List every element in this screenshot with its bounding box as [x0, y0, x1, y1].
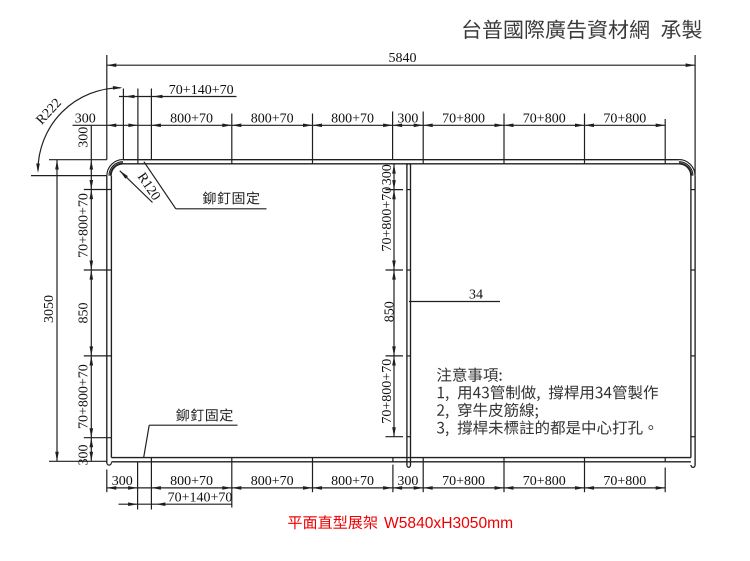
svg-text:5840: 5840: [389, 51, 417, 66]
svg-text:70+140+70: 70+140+70: [169, 83, 234, 98]
svg-text:850: 850: [383, 301, 398, 322]
svg-text:70+140+70: 70+140+70: [168, 491, 233, 506]
svg-text:70+800: 70+800: [442, 474, 485, 489]
svg-text:800+70: 800+70: [170, 474, 213, 489]
svg-text:300: 300: [77, 445, 92, 466]
svg-text:70+800+70: 70+800+70: [77, 193, 92, 258]
svg-text:800+70: 800+70: [331, 474, 374, 489]
svg-text:800+70: 800+70: [331, 112, 374, 127]
svg-text:800+70: 800+70: [251, 474, 294, 489]
svg-text:800+70: 800+70: [251, 112, 294, 127]
svg-text:70+800: 70+800: [523, 474, 566, 489]
svg-text:300: 300: [397, 112, 418, 127]
svg-text:300: 300: [112, 474, 133, 489]
svg-text:34: 34: [469, 287, 483, 302]
svg-text:800+70: 800+70: [170, 112, 213, 127]
svg-text:300: 300: [380, 164, 395, 185]
svg-text:70+800: 70+800: [442, 112, 485, 127]
svg-text:300: 300: [75, 112, 96, 127]
svg-text:70+800+70: 70+800+70: [77, 364, 92, 429]
svg-text:300: 300: [397, 474, 418, 489]
svg-text:300: 300: [77, 127, 92, 148]
svg-text:70+800: 70+800: [523, 112, 566, 127]
svg-text:W5840xH3050mm: W5840xH3050mm: [384, 515, 513, 532]
svg-text:850: 850: [77, 303, 92, 324]
svg-text:3050: 3050: [42, 295, 57, 323]
svg-text:70+800: 70+800: [603, 112, 646, 127]
svg-text:70+800+70: 70+800+70: [380, 187, 395, 252]
svg-text:70+800+70: 70+800+70: [380, 359, 395, 424]
svg-text:70+800: 70+800: [603, 474, 646, 489]
